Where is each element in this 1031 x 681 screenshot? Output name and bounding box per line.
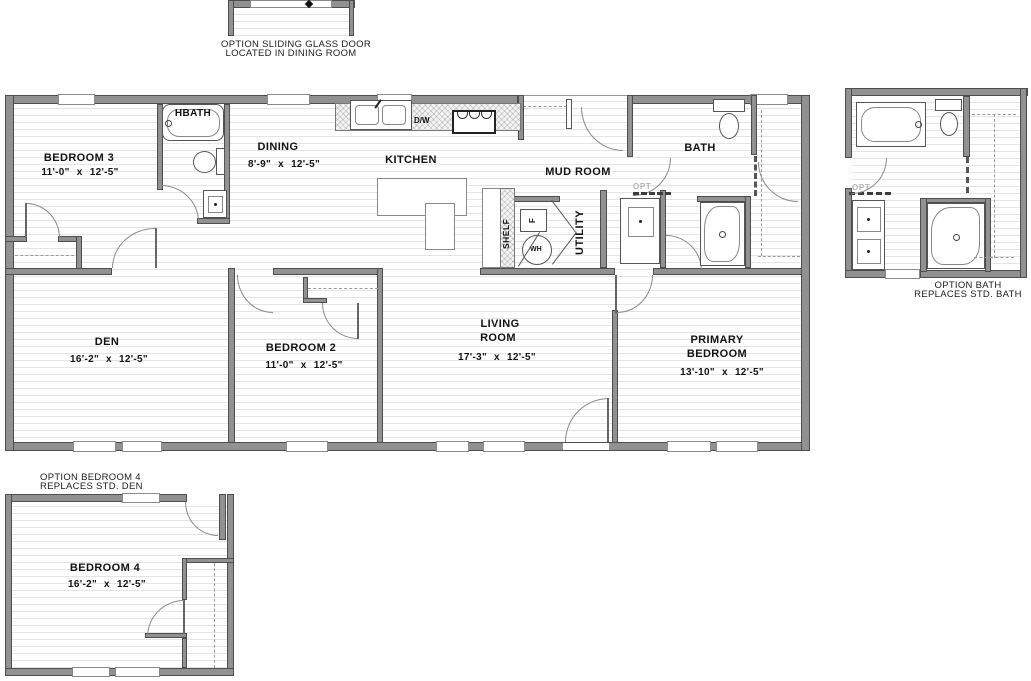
window — [885, 269, 920, 279]
window — [267, 94, 310, 105]
room-dims-dining: 8'-9" x 12'-5" — [224, 159, 344, 170]
room-label-primary-1: PRIMARY — [657, 334, 777, 346]
entry-porch — [521, 95, 627, 101]
wall — [845, 270, 890, 278]
wall — [228, 0, 234, 36]
room-label-mudroom: MUD ROOM — [518, 166, 638, 178]
room-dims-den: 16'-2" x 12'-5" — [49, 354, 169, 365]
bathroom-sink — [203, 190, 227, 218]
window — [483, 441, 525, 452]
burner — [469, 112, 480, 119]
toilet-tank — [935, 99, 962, 111]
door-leaf — [357, 303, 359, 339]
double-vanity — [852, 200, 885, 270]
bathtub-basin — [861, 107, 921, 142]
door-leaf — [607, 398, 609, 442]
window — [58, 94, 95, 105]
wall — [5, 236, 27, 242]
window — [436, 441, 469, 452]
drain-dot — [867, 218, 870, 221]
sink-basin — [382, 105, 406, 125]
wall — [963, 96, 970, 157]
closet-shelf-dashed — [994, 114, 995, 258]
inset-sliding-caption-2: LOCATED IN DINING ROOM — [221, 48, 361, 59]
range — [452, 110, 496, 134]
room-label-hbath: HBATH — [133, 108, 253, 119]
room-label-bedroom2: BEDROOM 2 — [241, 342, 361, 354]
closet-shelf-dashed — [761, 110, 762, 256]
shower — [927, 203, 985, 269]
wall — [480, 268, 615, 275]
closet-shelf-dashed — [974, 257, 1014, 258]
optional-wall-dashed — [633, 192, 671, 195]
toilet-tank — [713, 99, 745, 112]
floorplan-canvas: D/W SHELF F WH OPT BEDROOM 3 11'-0 — [0, 0, 1031, 681]
optional-wall-dashed — [966, 157, 969, 193]
shower — [700, 202, 745, 266]
wall — [845, 88, 1028, 96]
optional-wall-dashed — [754, 156, 757, 196]
room-label-living-2: ROOM — [438, 332, 558, 344]
wall — [985, 198, 991, 272]
wall — [182, 638, 187, 668]
room-label-kitchen: KITCHEN — [351, 154, 471, 166]
wall — [612, 310, 618, 443]
water-heater-label: WH — [530, 246, 542, 253]
room-label-den: DEN — [47, 336, 167, 348]
window — [286, 441, 328, 452]
furnace-label: F — [528, 218, 537, 223]
built-in-cabinet — [425, 203, 455, 250]
window — [72, 667, 110, 677]
room-dims-bedroom2: 11'-0" x 12'-5" — [244, 360, 364, 371]
window — [73, 441, 116, 452]
wall — [273, 268, 383, 275]
wall — [228, 268, 235, 443]
room-label-bath: BATH — [640, 142, 760, 154]
door-leaf — [615, 275, 617, 313]
opt-label: OPT — [633, 182, 651, 191]
wall — [745, 196, 751, 268]
burner — [481, 112, 492, 119]
window — [122, 441, 162, 452]
room-dims-living: 17'-3" x 12'-5" — [437, 352, 557, 363]
room-label-living-1: LIVING — [440, 318, 560, 330]
window — [667, 441, 711, 452]
drain-dot — [639, 220, 642, 223]
wall — [5, 268, 112, 275]
closet-shelf-dashed — [758, 256, 800, 257]
room-label-utility: UTILITY — [574, 196, 586, 268]
bath-vanity — [620, 198, 660, 264]
window — [716, 441, 758, 452]
wall — [845, 88, 852, 158]
wall — [377, 268, 383, 443]
room-label-dining: DINING — [218, 141, 338, 153]
toilet-bowl — [193, 151, 216, 173]
wall — [920, 270, 1027, 278]
sliding-glass-door — [250, 0, 332, 8]
inset-sliding-floor — [233, 8, 350, 36]
porch-dashed-line — [523, 106, 567, 107]
window — [122, 493, 160, 503]
inset-bed4-caption-2: REPLACES STD. DEN — [40, 481, 143, 492]
wall — [920, 198, 927, 272]
drain-dot — [953, 234, 960, 241]
bathtub — [856, 102, 926, 147]
wall — [182, 558, 234, 563]
burner — [457, 112, 468, 119]
closet-rod-dashed — [10, 255, 74, 256]
room-dims-bedroom3: 11'-0" x 12'-5" — [20, 167, 140, 178]
drain-dot — [719, 231, 726, 238]
wall — [76, 236, 82, 272]
shelf-label: SHELF — [501, 206, 511, 262]
door-leaf — [25, 203, 27, 238]
wall — [219, 494, 226, 540]
room-label-bedroom3: BEDROOM 3 — [19, 152, 139, 164]
wall — [627, 95, 633, 157]
dishwasher-label: D/W — [414, 116, 430, 125]
drain-dot — [867, 250, 870, 253]
toilet-bowl — [719, 113, 739, 139]
drain-dot — [214, 203, 217, 206]
wall — [182, 558, 187, 600]
faucet-icon — [165, 120, 172, 127]
wall — [845, 188, 852, 278]
door-leaf — [155, 228, 157, 268]
wall — [1020, 88, 1027, 278]
faucet-icon — [915, 121, 922, 128]
window — [115, 667, 160, 677]
rear-door-opening — [563, 443, 609, 450]
furnace: F — [520, 209, 547, 232]
room-dims-bedroom4: 16'-2" x 12'-5" — [47, 579, 167, 590]
room-dims-primary: 13'-10" x 12'-5" — [662, 367, 782, 378]
room-label-bedroom4: BEDROOM 4 — [45, 562, 165, 574]
wall — [600, 190, 607, 268]
room-label-primary-2: BEDROOM — [657, 348, 777, 360]
closet-shelf-dashed — [214, 563, 215, 668]
wall — [801, 95, 810, 451]
wall — [5, 494, 12, 676]
kitchen-sink — [350, 100, 412, 130]
wall — [227, 494, 234, 676]
inset-bath-caption-2: REPLACES STD. BATH — [898, 289, 1031, 300]
wall — [349, 0, 354, 36]
wall — [197, 218, 230, 224]
closet-rod-dashed — [308, 288, 378, 289]
entry-door-leaf — [566, 99, 572, 129]
toilet-bowl — [940, 112, 958, 136]
